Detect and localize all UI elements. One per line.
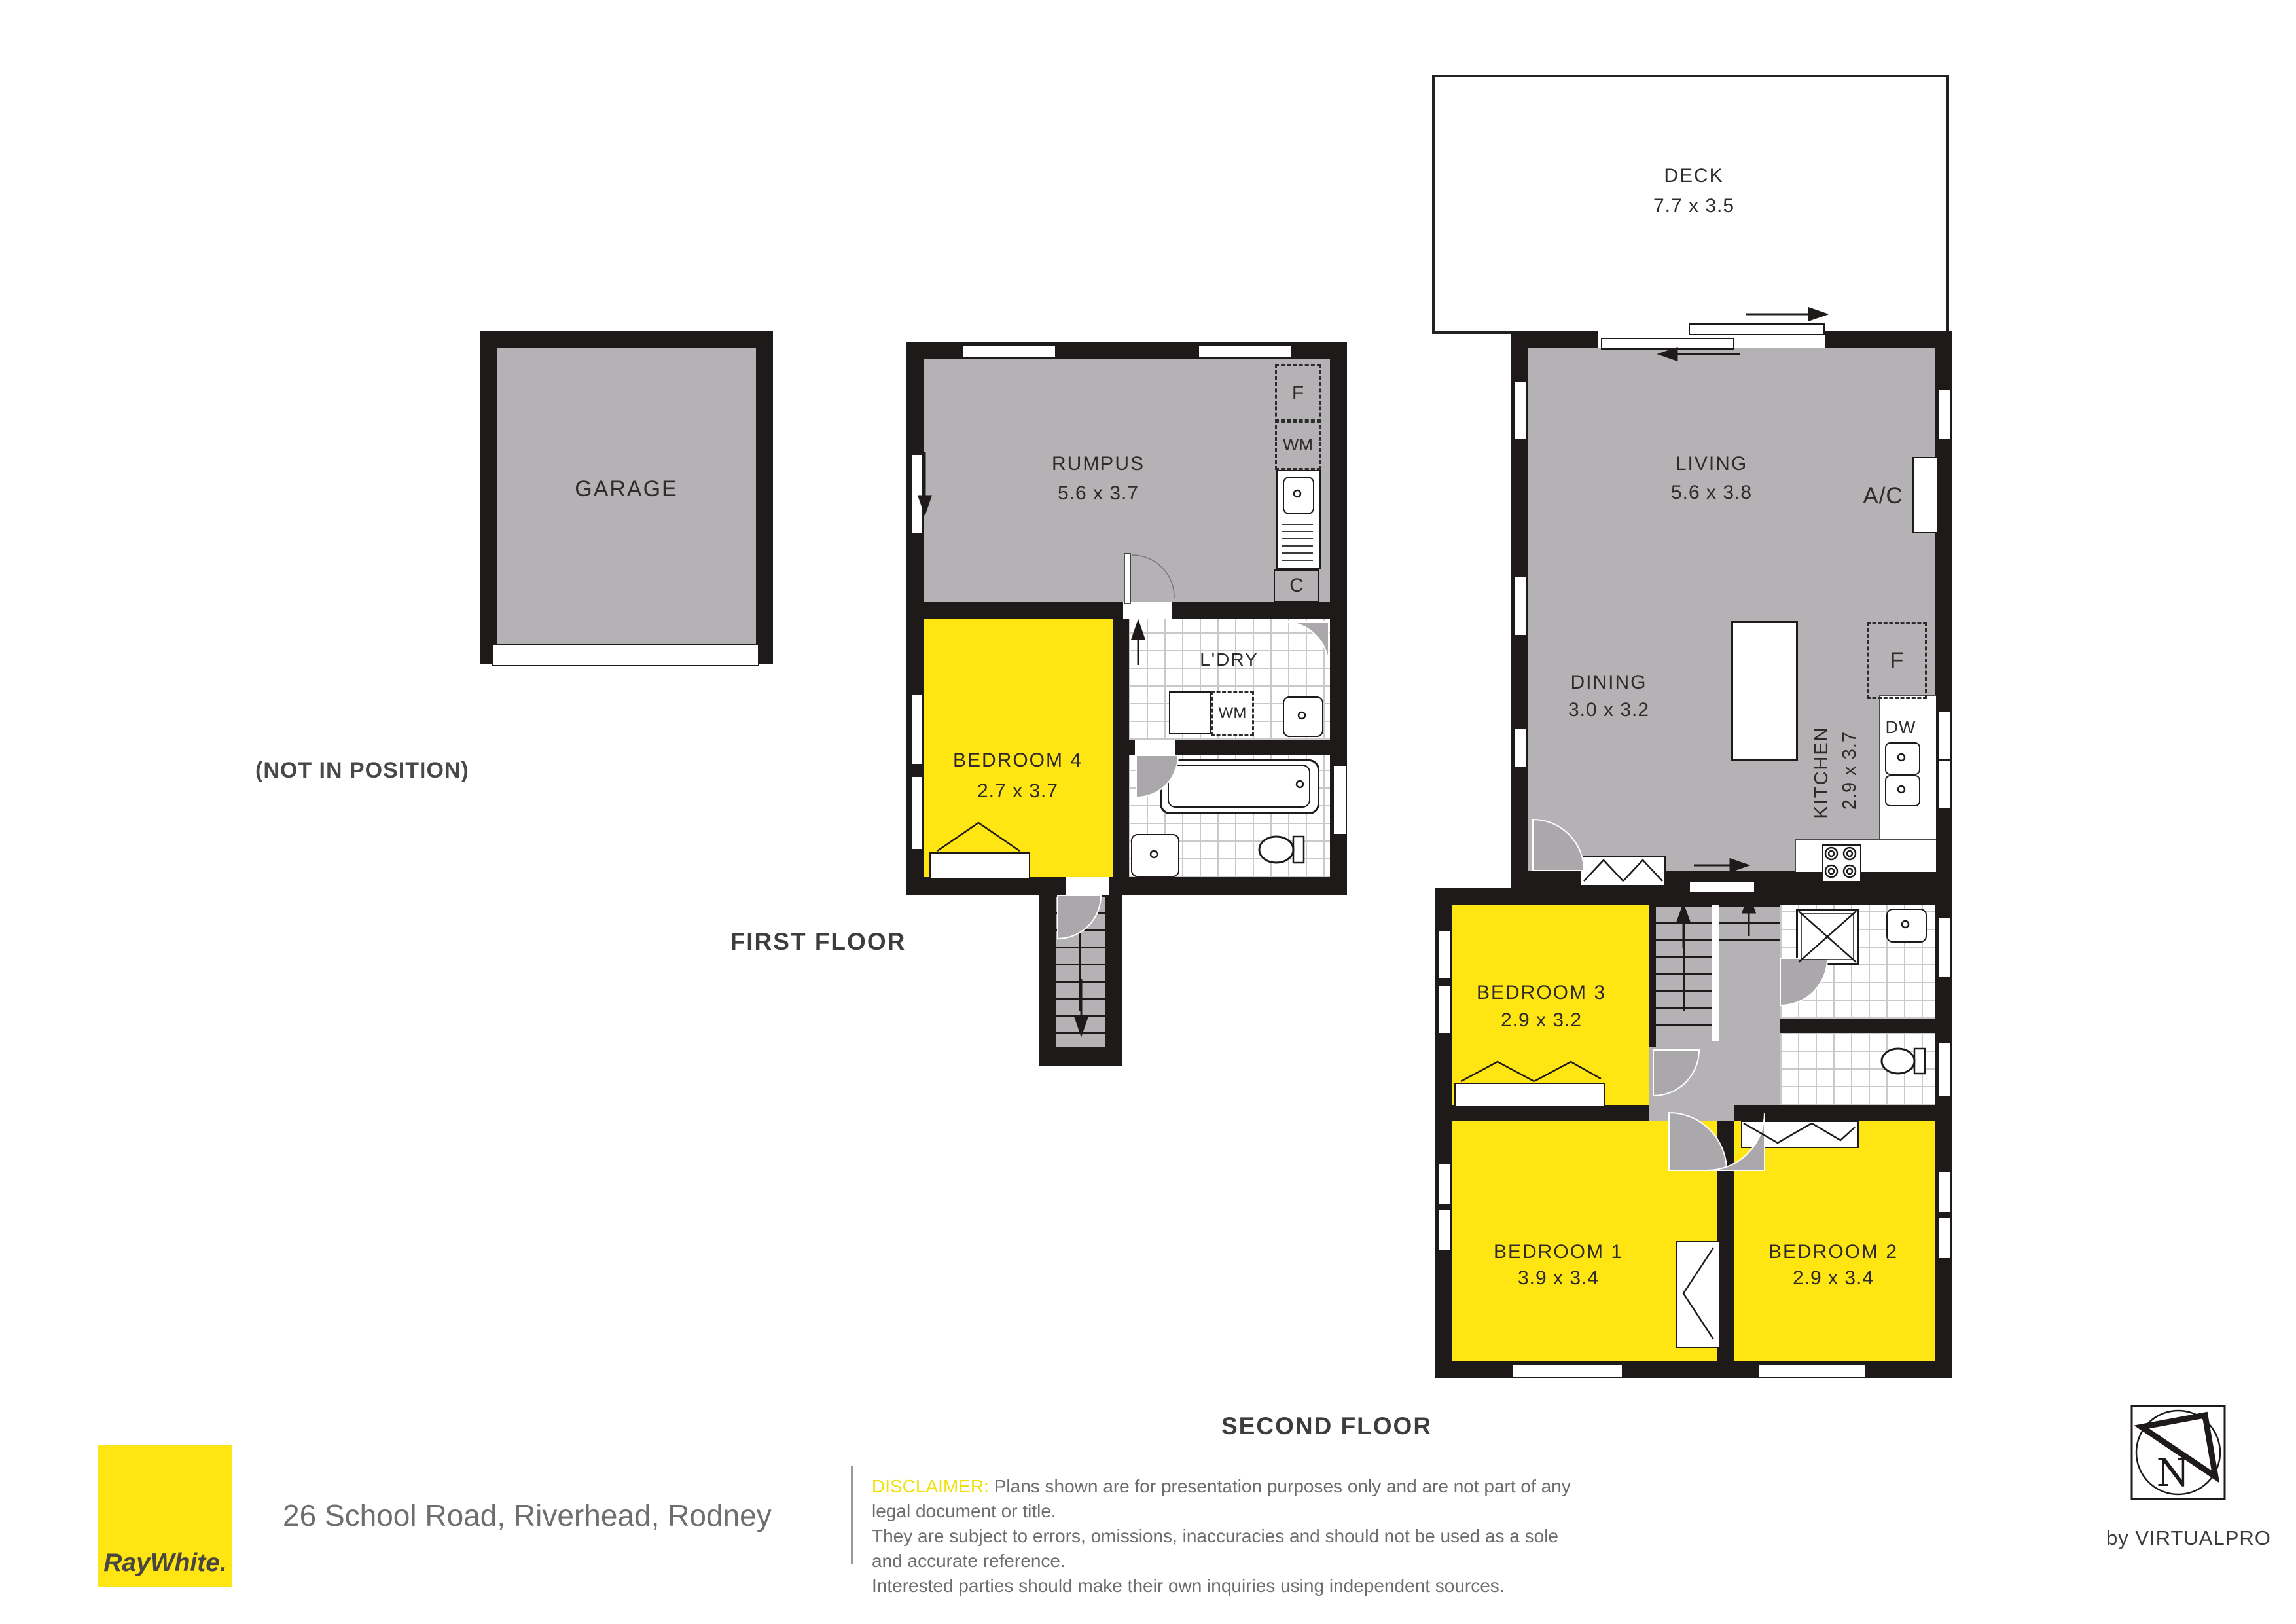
- address-text: 26 School Road, Riverhead, Rodney: [283, 1498, 772, 1533]
- deck-dims: 7.7 x 3.5: [1563, 195, 1825, 217]
- bedroom2-window-right-1: [1937, 1170, 1952, 1214]
- kitchen-sink-upper: [1885, 742, 1920, 775]
- bedroom4-floor: [924, 619, 1113, 877]
- living-dims: 5.6 x 3.8: [1613, 482, 1810, 504]
- laundry-tub: [1169, 691, 1211, 734]
- dining-dims: 3.0 x 3.2: [1511, 699, 1707, 721]
- living-window-right-1: [1937, 389, 1952, 440]
- dining-label: DINING: [1511, 672, 1707, 694]
- stairs2-divider: [1683, 905, 1685, 1011]
- stairs2-handrail: [1712, 905, 1719, 1041]
- bedroom2-dims: 2.9 x 3.4: [1735, 1267, 1931, 1290]
- rumpus-entry-opening: [912, 455, 922, 533]
- living-label: LIVING: [1613, 453, 1810, 475]
- wc-window: [1937, 1042, 1952, 1097]
- bedroom1-dims: 3.9 x 3.4: [1460, 1267, 1657, 1290]
- bedroom2-wardrobe: [1741, 1121, 1859, 1148]
- disclaimer-line-2: They are subject to errors, omissions, i…: [872, 1524, 1592, 1574]
- living-window-left-1: [1513, 381, 1528, 440]
- garage-door-opening: [492, 644, 759, 666]
- bathroom2-sink: [1886, 909, 1927, 943]
- ac-text: A/C: [1863, 483, 1903, 509]
- rumpus-label: RUMPUS: [1000, 453, 1196, 475]
- washer-letter: WM: [1283, 435, 1313, 455]
- hall-closet: [1579, 856, 1666, 886]
- bedroom2-window-bottom: [1758, 1363, 1867, 1378]
- rumpus-sink-basin: [1283, 477, 1314, 514]
- bathroom-sink: [1131, 834, 1179, 877]
- living-floor: [1528, 348, 1935, 871]
- kitchen-sink-lower: [1885, 775, 1920, 806]
- fridge-box-second-floor: F: [1867, 622, 1927, 699]
- washing-machine-box-laundry: WM: [1211, 691, 1254, 736]
- footer-divider: [851, 1466, 853, 1564]
- laundry-label: L'DRY: [1131, 649, 1327, 670]
- stairs2-flight-b: [1719, 905, 1780, 945]
- rumpus-dims: 5.6 x 3.7: [1000, 482, 1196, 505]
- second-floor-title: SECOND FLOOR: [1221, 1413, 1418, 1440]
- raywhite-logo-text: RayWhite.: [98, 1549, 232, 1578]
- bedroom1-wardrobe: [1676, 1241, 1720, 1348]
- cooktop: [1822, 844, 1861, 882]
- dishwasher-text: DW: [1886, 717, 1916, 737]
- bathroom2-window: [1937, 916, 1952, 978]
- garage-label: GARAGE: [497, 477, 756, 502]
- dishwasher-label: DW: [1878, 717, 1924, 738]
- disclaimer-block: DISCLAIMER: Plans shown are for presenta…: [872, 1474, 1592, 1598]
- laundry-sink: [1283, 696, 1323, 737]
- cupboard-letter: C: [1289, 575, 1304, 597]
- bathroom2-wc-wall: [1780, 1019, 1935, 1033]
- fridge-letter: F: [1292, 382, 1304, 405]
- bedroom4-door-opening: [1066, 877, 1109, 895]
- rumpus-window-top-left: [962, 345, 1056, 359]
- sliding-panel-left: [1601, 338, 1734, 350]
- ac-label: A/C: [1847, 483, 1919, 509]
- wc-bottom-wall: [1734, 1105, 1935, 1121]
- rumpus-window-top-right: [1198, 345, 1292, 359]
- bedroom1-window-left-2: [1437, 1208, 1452, 1252]
- disclaimer-label: DISCLAIMER:: [872, 1476, 989, 1496]
- stairs2-left-wall: [1649, 905, 1656, 1047]
- kitchen-island: [1731, 621, 1798, 761]
- bedroom3-dims: 2.9 x 3.2: [1443, 1009, 1640, 1032]
- living-window-left-3: [1513, 728, 1528, 768]
- disclaimer-line-1: DISCLAIMER: Plans shown are for presenta…: [872, 1474, 1592, 1524]
- bedroom1-window-left-1: [1437, 1163, 1452, 1206]
- bathroom-door-opening: [1135, 740, 1175, 755]
- bedroom1-label: BEDROOM 1: [1460, 1241, 1657, 1263]
- bedroom4-sill-window: [929, 852, 1030, 880]
- cupboard-box: C: [1274, 569, 1319, 602]
- bedroom2-window-right-2: [1937, 1216, 1952, 1259]
- kitchen-dims: 2.9 x 3.7: [1839, 705, 1860, 836]
- stairs1-divider: [1079, 895, 1081, 1011]
- bedroom3-wardrobe: [1454, 1083, 1605, 1108]
- bedroom4-right-wall: [1113, 619, 1129, 877]
- bedroom4-label: BEDROOM 4: [920, 749, 1116, 772]
- deck-label: DECK: [1563, 165, 1825, 187]
- rumpus-floor: [924, 359, 1330, 602]
- bedroom3-window-1: [1437, 929, 1452, 979]
- bedroom3-floor: [1452, 905, 1649, 1105]
- bedroom1-window-bottom: [1512, 1363, 1623, 1378]
- washing-machine-box-rumpus: WM: [1275, 419, 1321, 470]
- rumpus-door-opening: [1123, 602, 1172, 619]
- fridge-box-first-floor: F: [1275, 364, 1321, 423]
- stairs2-opening: [1690, 882, 1754, 892]
- shower: [1796, 909, 1859, 965]
- kitchen-window-right-1: [1937, 711, 1952, 761]
- kitchen-counter-bottom: [1795, 839, 1936, 872]
- bedroom3-label: BEDROOM 3: [1443, 982, 1640, 1004]
- first-floor-title: FIRST FLOOR: [720, 928, 916, 956]
- disclaimer-line-3: Interested parties should make their own…: [872, 1574, 1592, 1598]
- not-in-position-label: (NOT IN POSITION): [255, 758, 471, 784]
- bedroom2-label: BEDROOM 2: [1735, 1241, 1931, 1263]
- fridge2-letter: F: [1890, 648, 1904, 674]
- rumpus-sink-drainer: [1282, 524, 1313, 562]
- bathtub-inner: [1168, 765, 1310, 808]
- sliding-panel-right: [1689, 323, 1825, 335]
- living-window-left-2: [1513, 576, 1528, 636]
- compass-n-letter: N: [2140, 1451, 2206, 1495]
- wc-floor: [1780, 1033, 1935, 1105]
- kitchen-window-right-2: [1937, 759, 1952, 809]
- kitchen-label: KITCHEN: [1811, 707, 1832, 838]
- floor-plan-page: GARAGE (NOT IN POSITION) RUMPUS 5.6 x 3.…: [0, 0, 2296, 1624]
- virtualpro-credit: by VIRTUALPRO: [2106, 1526, 2250, 1550]
- bedroom4-dims: 2.7 x 3.7: [920, 780, 1116, 803]
- bathroom-window: [1333, 765, 1347, 835]
- laundry-washer-letter: WM: [1219, 704, 1247, 723]
